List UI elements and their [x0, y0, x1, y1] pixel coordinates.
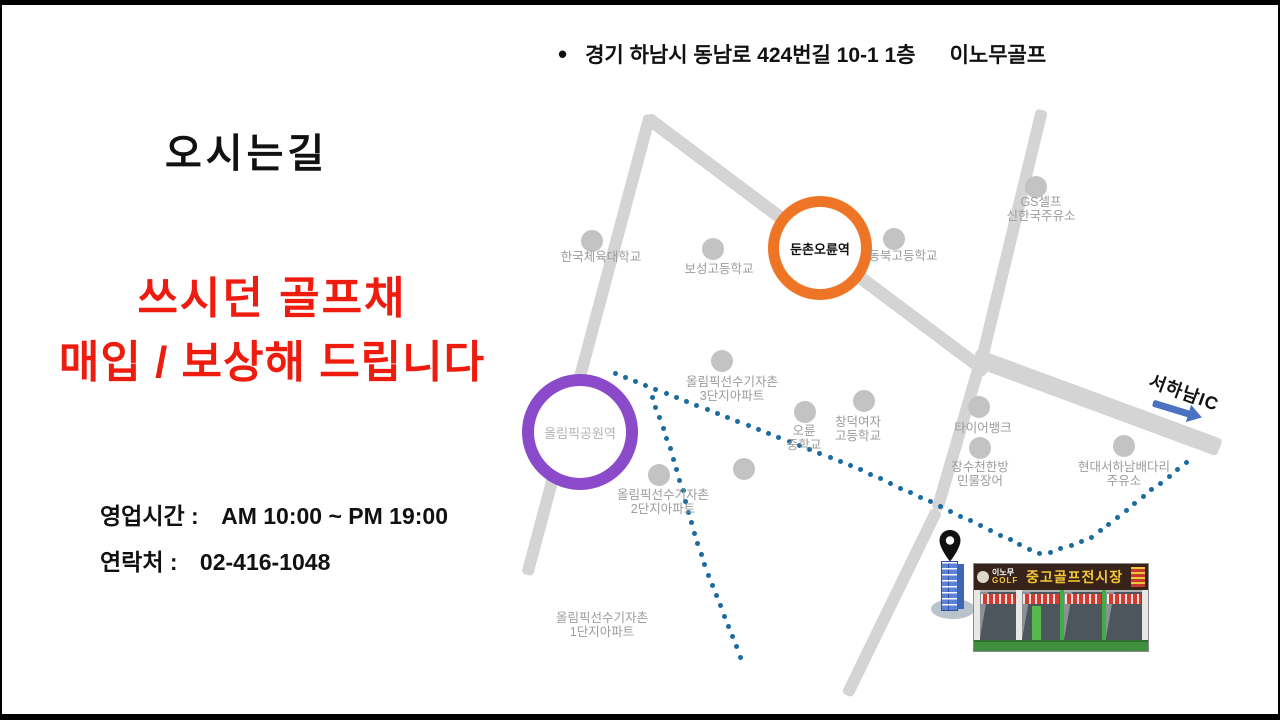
route-main-dot — [776, 435, 781, 440]
route-branch-dot — [710, 583, 715, 588]
route-main-dot — [1141, 494, 1146, 499]
poi-label: 한국체육대학교 — [561, 250, 642, 264]
route-main-dot — [694, 403, 699, 408]
route-branch-dot — [674, 467, 679, 472]
route-branch-dot — [738, 655, 743, 660]
route-main-dot — [1058, 546, 1063, 551]
shop-window — [1064, 592, 1102, 642]
storefront-photo: 이노무 GOLF 중고골프전시장 — [973, 563, 1149, 652]
route-main-dot — [1079, 539, 1084, 544]
route-main-dot — [1089, 535, 1094, 540]
poi-label: 올림픽선수기자촌1단지아파트 — [556, 611, 648, 639]
route-branch-dot — [657, 415, 662, 420]
route-main-dot — [1027, 547, 1032, 552]
route-main-dot — [858, 467, 863, 472]
route-main-dot — [1115, 515, 1120, 520]
poi-dot — [733, 458, 755, 480]
route-main-dot — [715, 411, 720, 416]
poi-dot — [581, 230, 603, 252]
poi-dot — [853, 390, 875, 412]
storefront-ground — [974, 640, 1148, 651]
route-main-dot — [918, 495, 923, 500]
route-main-dot — [998, 533, 1003, 538]
route-main-dot — [848, 463, 853, 468]
route-branch-dot — [671, 457, 676, 462]
route-main-dot — [674, 395, 679, 400]
arrow-head — [1186, 405, 1205, 426]
route-main-dot — [1124, 508, 1129, 513]
map: 서하남IC 이노무 GOLF 중고골프전시장 — [2, 5, 1278, 714]
building-tower — [941, 561, 958, 611]
storefront-brand: 이노무 GOLF — [992, 569, 1018, 585]
route-main-dot — [725, 415, 730, 420]
route-main-dot — [623, 375, 628, 380]
window-banner — [1065, 594, 1101, 604]
map-road — [842, 507, 943, 697]
route-branch-dot — [653, 405, 658, 410]
poi-label: 창덕여자고등학교 — [835, 415, 881, 443]
route-main-dot — [746, 423, 751, 428]
poi-label: GS셀프신한국주유소 — [1006, 195, 1075, 223]
route-main-dot — [766, 431, 771, 436]
poi-dot — [702, 238, 724, 260]
route-branch-dot — [664, 436, 669, 441]
directions-slide: • 경기 하남시 동남로 424번길 10-1 1층 이노무골프 오시는길 쓰시… — [0, 0, 1280, 720]
poi-label: 장수천한방민물장어 — [951, 460, 1009, 488]
shop-window — [980, 592, 1016, 642]
poi-dot — [969, 437, 991, 459]
route-branch-dot — [661, 426, 666, 431]
route-main-dot — [838, 459, 843, 464]
poi-label: 올림픽선수기자촌3단지아파트 — [686, 375, 778, 403]
route-main-dot — [1069, 543, 1074, 548]
poi-label: 현대서하남배다리주유소 — [1078, 460, 1170, 488]
brand-bottom: GOLF — [992, 577, 1018, 585]
poi-label: 동북고등학교 — [868, 249, 937, 263]
route-main-dot — [1106, 522, 1111, 527]
green-banner — [1032, 606, 1041, 640]
route-main-dot — [664, 391, 669, 396]
route-main-dot — [828, 455, 833, 460]
route-branch-dot — [677, 478, 682, 483]
route-main-dot — [978, 523, 983, 528]
route-main-dot — [898, 486, 903, 491]
route-main-dot — [1008, 537, 1013, 542]
route-main-dot — [633, 379, 638, 384]
store-building-icon — [930, 561, 978, 623]
route-branch-dot — [689, 520, 694, 525]
building-side — [957, 564, 964, 609]
route-main-dot — [1048, 550, 1053, 555]
window-banner — [1023, 594, 1059, 604]
route-main-dot — [1175, 467, 1180, 472]
subway-station-ring: 올림픽공원역 — [522, 374, 638, 490]
route-main-dot — [888, 481, 893, 486]
route-main-dot — [878, 476, 883, 481]
map-road — [974, 109, 1048, 369]
route-branch-dot — [702, 562, 707, 567]
shop-window — [1106, 592, 1142, 642]
shop-window — [1022, 592, 1060, 642]
route-branch-dot — [650, 395, 655, 400]
route-branch-dot — [718, 603, 723, 608]
route-main-dot — [653, 387, 658, 392]
route-branch-dot — [668, 446, 673, 451]
route-branch-dot — [730, 634, 735, 639]
route-main-dot — [968, 518, 973, 523]
subway-station-ring: 둔촌오륜역 — [768, 196, 872, 300]
route-branch-dot — [706, 573, 711, 578]
window-banner — [1107, 594, 1141, 604]
route-main-dot — [1132, 501, 1137, 506]
route-main-dot — [1184, 460, 1189, 465]
poi-dot — [883, 228, 905, 250]
poi-dot — [968, 396, 990, 418]
poi-dot — [1113, 435, 1135, 457]
route-main-dot — [1017, 542, 1022, 547]
route-branch-dot — [695, 541, 700, 546]
route-branch-dot — [699, 552, 704, 557]
route-main-dot — [948, 509, 953, 514]
poi-dot — [794, 401, 816, 423]
poi-label: 올림픽선수기자촌2단지아파트 — [617, 488, 709, 516]
poi-dot — [648, 464, 670, 486]
route-branch-dot — [722, 614, 727, 619]
route-branch-dot — [714, 593, 719, 598]
route-main-dot — [756, 427, 761, 432]
storefront-sign-text: 중고골프전시장 — [1021, 567, 1128, 587]
route-main-dot — [988, 528, 993, 533]
poi-label: 타이어뱅크 — [954, 421, 1012, 435]
route-main-dot — [613, 371, 618, 376]
storefront-sign: 이노무 GOLF 중고골프전시장 — [974, 564, 1148, 590]
route-main-dot — [735, 419, 740, 424]
route-main-dot — [868, 472, 873, 477]
destination-pin-icon — [937, 529, 963, 563]
route-branch-dot — [692, 531, 697, 536]
route-main-dot — [1098, 528, 1103, 533]
route-main-dot — [705, 407, 710, 412]
arrow-bar — [1152, 399, 1190, 417]
station-label: 둔촌오륜역 — [790, 239, 850, 258]
storefront-side-sign — [1131, 567, 1145, 587]
route-main-dot — [958, 514, 963, 519]
route-branch-dot — [726, 624, 731, 629]
storefront-windows — [974, 590, 1148, 651]
route-main-dot — [908, 490, 913, 495]
poi-label: 보성고등학교 — [684, 262, 753, 276]
route-main-dot — [643, 383, 648, 388]
poi-label: 오륜중학교 — [787, 424, 822, 452]
poi-dot — [711, 350, 733, 372]
route-main-dot — [1037, 551, 1042, 556]
window-banner — [981, 594, 1015, 604]
route-main-dot — [1149, 487, 1154, 492]
storefront-logo-icon — [977, 571, 989, 583]
route-branch-dot — [734, 644, 739, 649]
station-label: 올림픽공원역 — [544, 423, 616, 442]
